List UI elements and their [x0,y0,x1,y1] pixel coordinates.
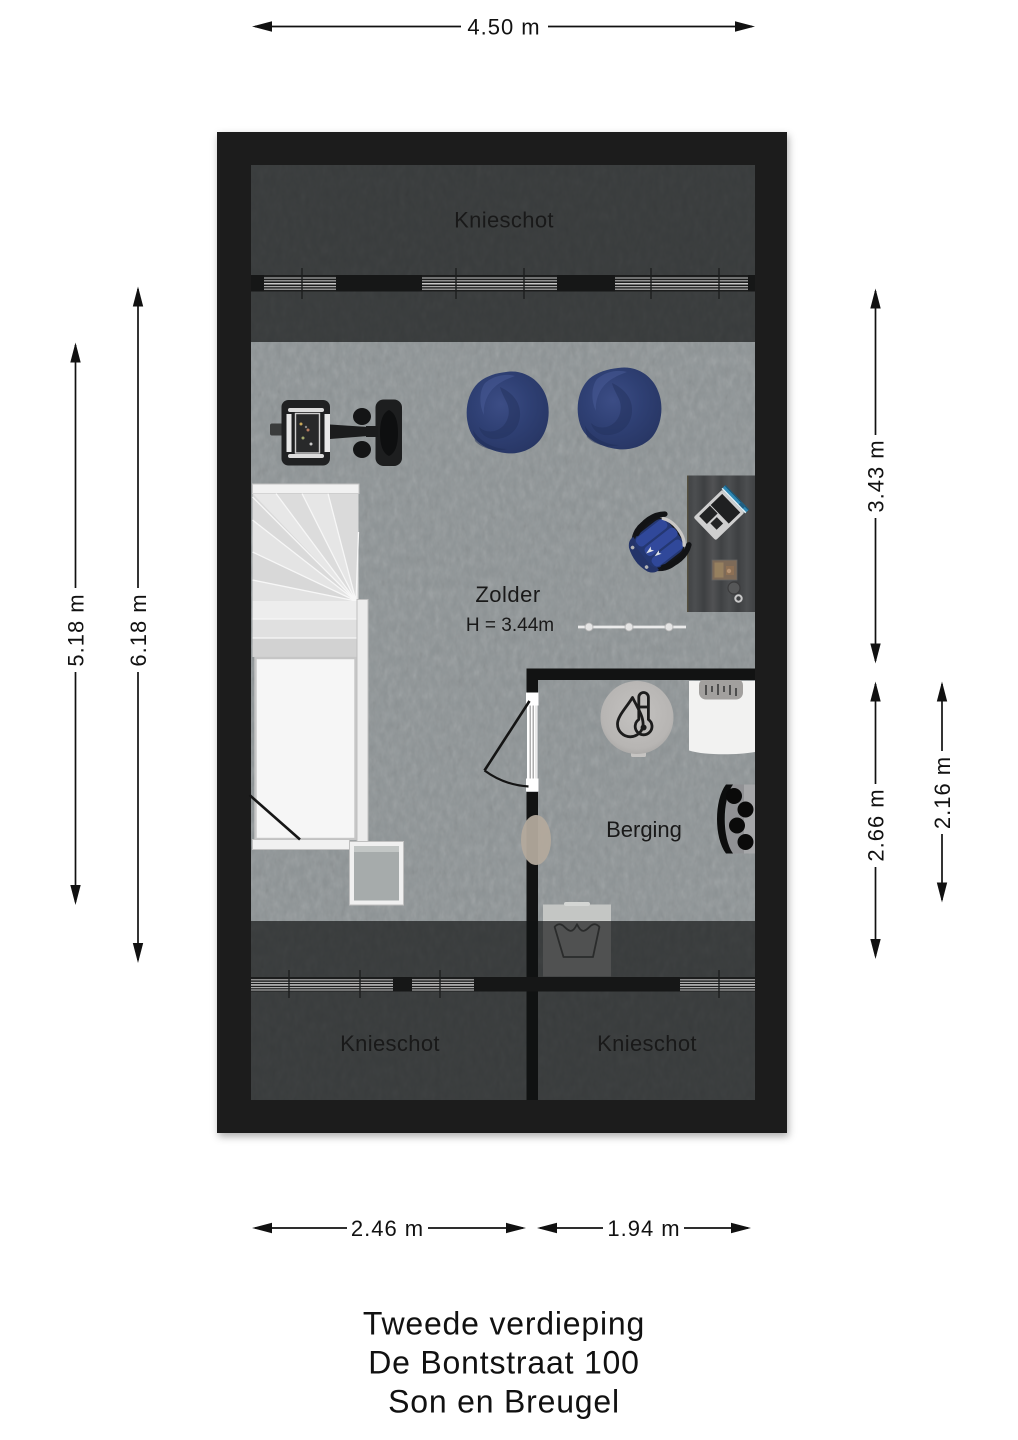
svg-text:4.50 m: 4.50 m [467,15,540,40]
svg-text:Son en Breugel: Son en Breugel [388,1384,620,1420]
svg-text:3.43 m: 3.43 m [864,439,889,512]
svg-text:1.94 m: 1.94 m [607,1216,680,1241]
svg-text:5.18 m: 5.18 m [64,593,89,666]
svg-text:Knieschot: Knieschot [340,1031,440,1056]
svg-text:2.46 m: 2.46 m [351,1216,424,1241]
svg-text:Tweede verdieping: Tweede verdieping [363,1306,645,1342]
svg-text:Zolder: Zolder [475,582,540,607]
svg-text:H = 3.44m: H = 3.44m [466,615,554,636]
svg-text:De Bontstraat 100: De Bontstraat 100 [368,1345,640,1381]
svg-text:2.66 m: 2.66 m [864,788,889,861]
svg-text:Knieschot: Knieschot [454,208,554,233]
svg-text:2.16 m: 2.16 m [930,756,955,829]
svg-text:Berging: Berging [606,817,682,842]
svg-text:Knieschot: Knieschot [597,1031,697,1056]
svg-text:6.18 m: 6.18 m [126,593,151,666]
